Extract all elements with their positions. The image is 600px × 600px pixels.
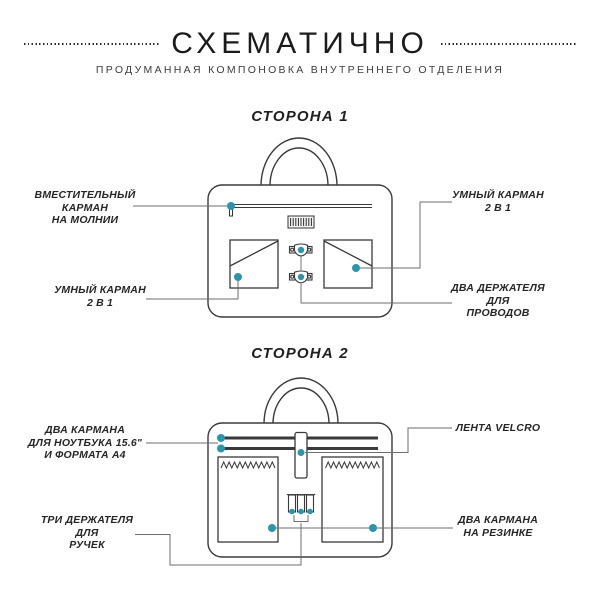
feature-dot [369, 524, 377, 532]
infographic-canvas: СХЕМАТИЧНО ПРОДУМАННАЯ КОМПОНОВКА ВНУТРЕ… [0, 0, 600, 600]
feature-dot [298, 509, 304, 515]
label-elastic-pockets: ДВА КАРМАНА НА РЕЗИНКЕ [428, 514, 568, 539]
label-smart-pocket-right: УМНЫЙ КАРМАН 2 В 1 [428, 189, 568, 214]
feature-dot [227, 202, 235, 210]
feature-dot [289, 509, 295, 515]
smart-pocket-right [324, 240, 372, 288]
bag-handle-inner [270, 148, 328, 186]
feature-dot [217, 445, 225, 453]
feature-dot [234, 273, 242, 281]
label-cable-holders: ДВА ДЕРЖАТЕЛЯ ДЛЯ ПРОВОДОВ [428, 282, 568, 320]
feature-dot [298, 449, 305, 456]
label-smart-pocket-left: УМНЫЙ КАРМАН 2 В 1 [30, 284, 170, 309]
bag-side1 [208, 138, 392, 317]
feature-dot [268, 524, 276, 532]
bag-handle [261, 138, 337, 186]
feature-dot [352, 264, 360, 272]
feature-dot [217, 434, 225, 442]
bag-side2 [208, 378, 392, 557]
label-velcro: ЛЕНТА VELCRO [428, 422, 568, 435]
barcode-icon [288, 216, 314, 228]
bag-handle [264, 378, 338, 424]
bag-handle-inner [273, 388, 329, 424]
feature-dot [298, 274, 304, 280]
label-pen-holders: ТРИ ДЕРЖАТЕЛЯ ДЛЯ РУЧЕК [17, 514, 157, 552]
feature-dot [307, 509, 313, 515]
label-laptop-pockets: ДВА КАРМАНА ДЛЯ НОУТБУКА 15.6" И ФОРМАТА… [15, 424, 155, 462]
feature-dot [298, 247, 304, 253]
label-zip-pocket: ВМЕСТИТЕЛЬНЫЙ КАРМАН НА МОЛНИИ [15, 189, 155, 227]
